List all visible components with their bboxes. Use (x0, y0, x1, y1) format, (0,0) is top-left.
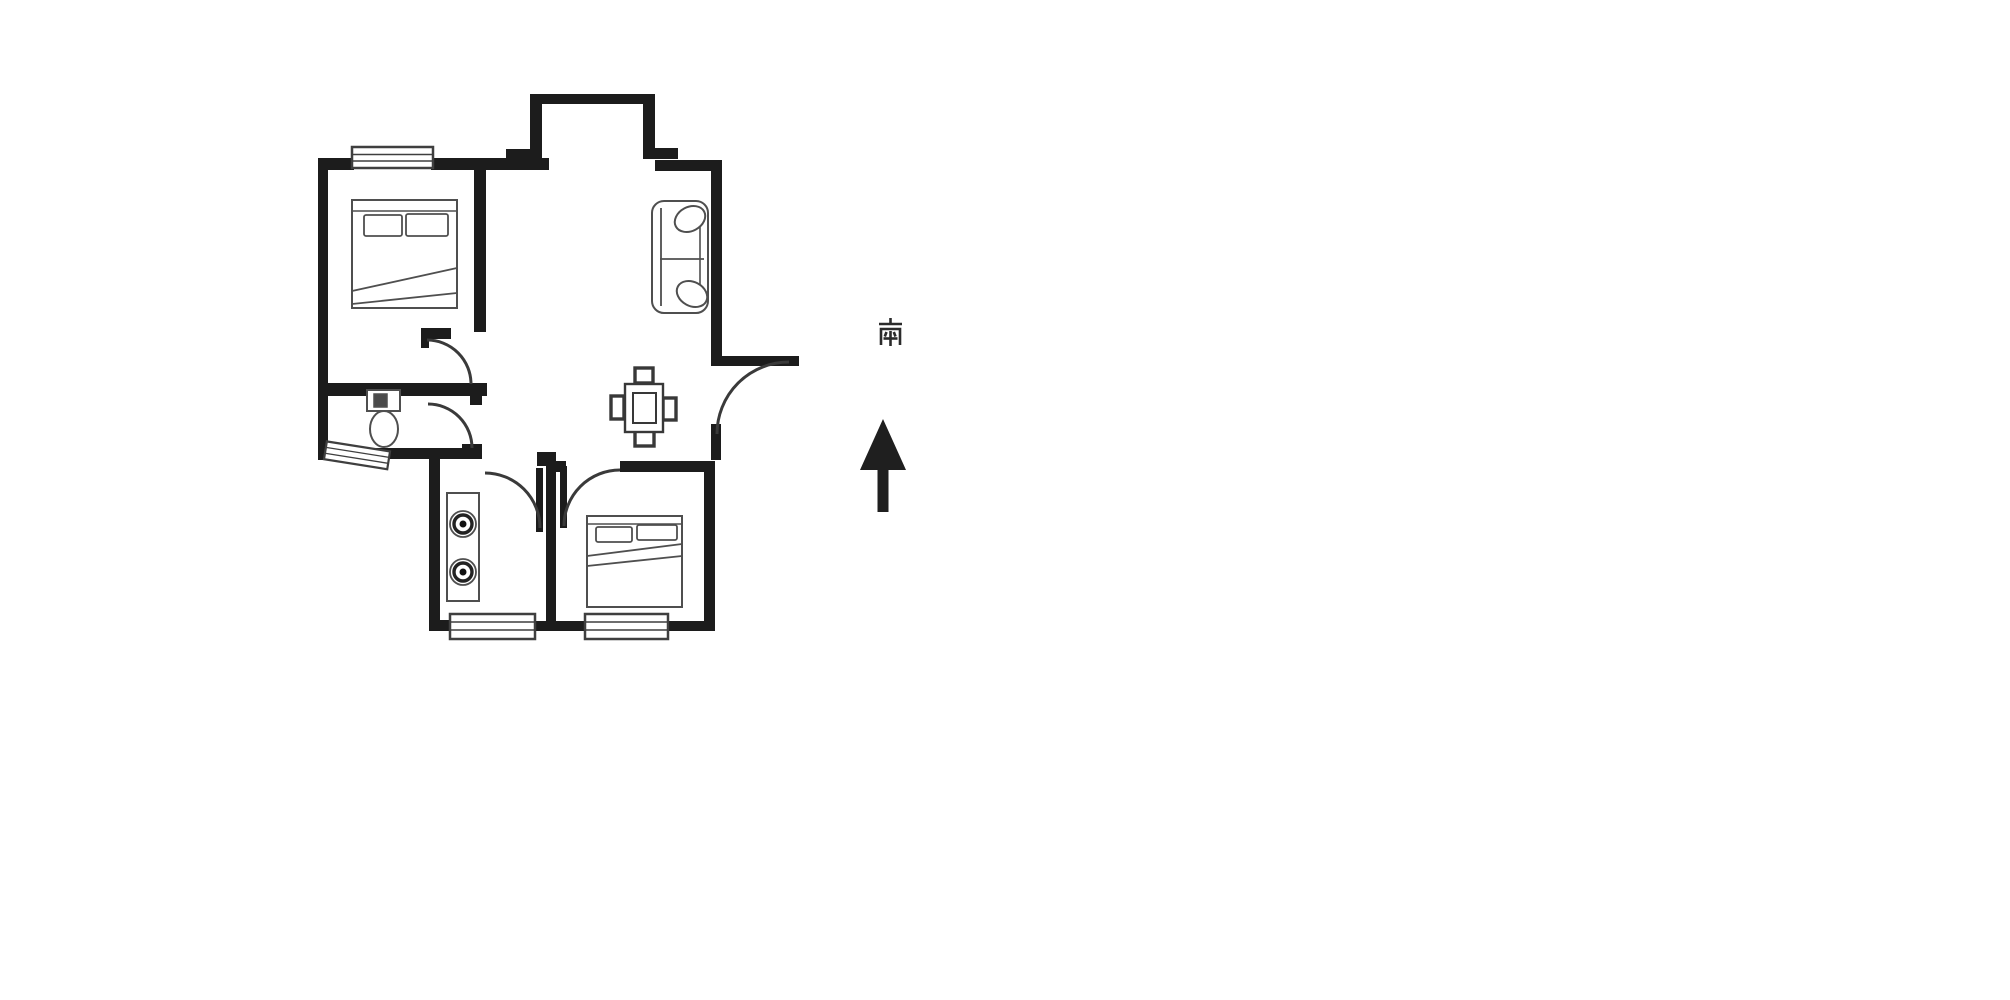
dining-chair (611, 396, 624, 419)
wall-segment (711, 160, 722, 364)
main-bedroom-top-window (352, 147, 433, 168)
dining-chair (635, 431, 654, 446)
compass: 南 (860, 318, 906, 512)
entry-door-arc (717, 362, 789, 434)
second-bedroom-bottom-window (585, 614, 668, 639)
wall-segment (318, 383, 487, 396)
dining-chair (663, 398, 676, 420)
door-arcs (427, 340, 789, 528)
sofa-icon (652, 201, 712, 313)
wall-segment (664, 621, 715, 631)
wall-segment (546, 461, 556, 631)
compass-arrow-icon (860, 419, 906, 512)
toilet-icon (367, 390, 400, 447)
wall-segment (421, 328, 429, 348)
wall-segment (429, 450, 440, 631)
wall-segment (530, 94, 655, 104)
main-bedroom-door-arc (427, 340, 471, 384)
gas-stove-icon (447, 493, 479, 601)
wall-segment (318, 158, 354, 170)
wall-segment (643, 148, 678, 159)
wall-segment (318, 158, 328, 460)
double-bed-icon-2 (587, 516, 682, 607)
wall-segment (620, 461, 715, 472)
wall-segment (474, 158, 486, 332)
furniture (352, 200, 712, 607)
bathroom-door-arc (428, 404, 472, 448)
floor-plan-page: 南 (0, 0, 2010, 1000)
kitchen-door-arc (485, 473, 540, 528)
wall-segment (704, 461, 715, 631)
walls (318, 94, 799, 631)
dining-table-icon (611, 368, 676, 446)
kitchen-bottom-window (450, 614, 535, 639)
double-bed-icon (352, 200, 457, 308)
wall-segment (531, 621, 591, 631)
floor-plan-image: 南 (0, 0, 2010, 1000)
dining-chair (635, 368, 653, 383)
wall-segment (470, 383, 482, 405)
